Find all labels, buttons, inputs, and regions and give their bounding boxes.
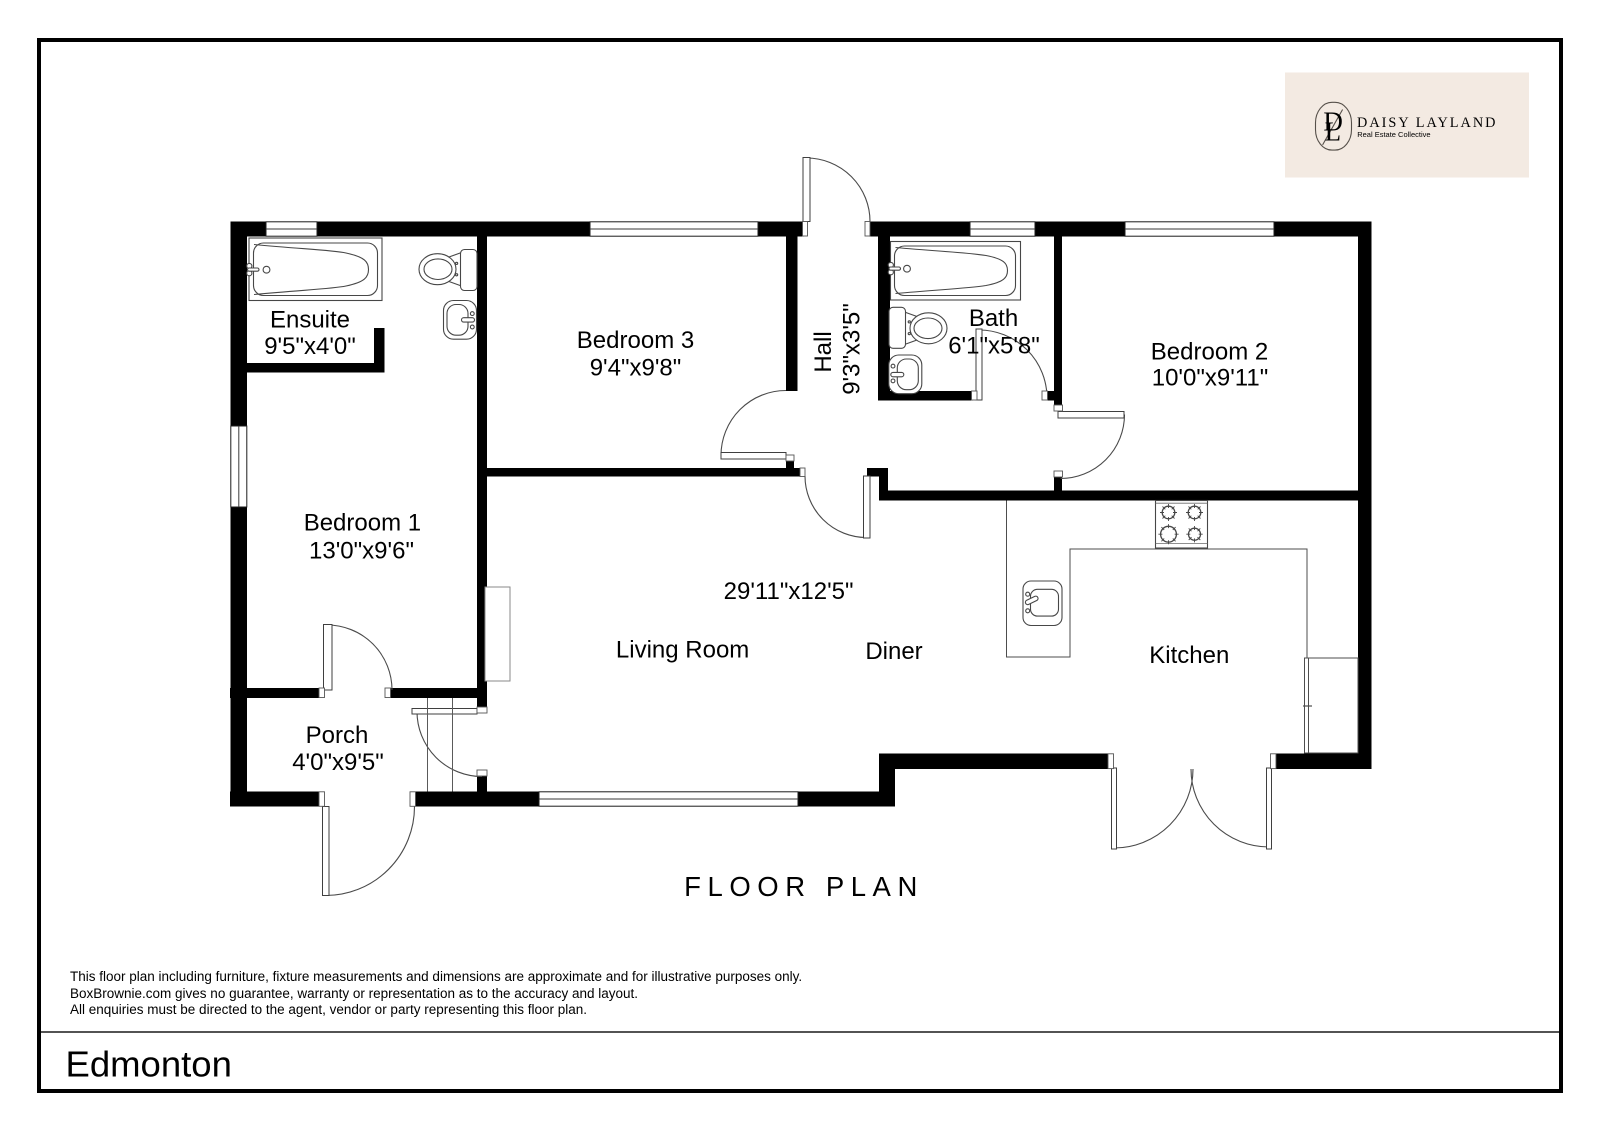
- svg-text:Bedroom 1: Bedroom 1: [304, 510, 421, 537]
- svg-text:BoxBrownie.com gives no guaran: BoxBrownie.com gives no guarantee, warra…: [70, 986, 638, 1001]
- svg-text:10'0"x9'11": 10'0"x9'11": [1152, 365, 1269, 392]
- svg-text:L: L: [1325, 117, 1342, 147]
- svg-text:Bedroom 2: Bedroom 2: [1151, 339, 1268, 366]
- svg-text:All enquiries must be directed: All enquiries must be directed to the ag…: [70, 1002, 587, 1017]
- svg-text:4'0"x9'5": 4'0"x9'5": [292, 749, 384, 776]
- svg-text:Bath: Bath: [969, 305, 1018, 332]
- svg-text:Ensuite: Ensuite: [270, 307, 350, 334]
- svg-text:9'4"x9'8": 9'4"x9'8": [590, 355, 682, 382]
- svg-text:Hall: Hall: [810, 331, 837, 372]
- svg-text:13'0"x9'6": 13'0"x9'6": [309, 538, 414, 565]
- svg-text:This floor plan including furn: This floor plan including furniture, fix…: [70, 969, 802, 984]
- svg-text:6'1"x5'8": 6'1"x5'8": [948, 333, 1040, 360]
- svg-text:Kitchen: Kitchen: [1149, 642, 1229, 669]
- svg-text:Diner: Diner: [865, 638, 922, 665]
- svg-text:Real Estate Collective: Real Estate Collective: [1357, 130, 1430, 139]
- svg-text:DAISY LAYLAND: DAISY LAYLAND: [1357, 115, 1498, 131]
- svg-text:Edmonton: Edmonton: [66, 1044, 232, 1085]
- svg-text:Living Room: Living Room: [616, 637, 749, 664]
- svg-text:Porch: Porch: [306, 722, 369, 749]
- svg-text:9'3"x3'5": 9'3"x3'5": [839, 303, 866, 395]
- svg-text:Bedroom 3: Bedroom 3: [577, 327, 694, 354]
- svg-text:29'11"x12'5": 29'11"x12'5": [724, 578, 854, 605]
- svg-text:9'5"x4'0": 9'5"x4'0": [264, 333, 356, 360]
- svg-text:FLOOR PLAN: FLOOR PLAN: [684, 871, 924, 902]
